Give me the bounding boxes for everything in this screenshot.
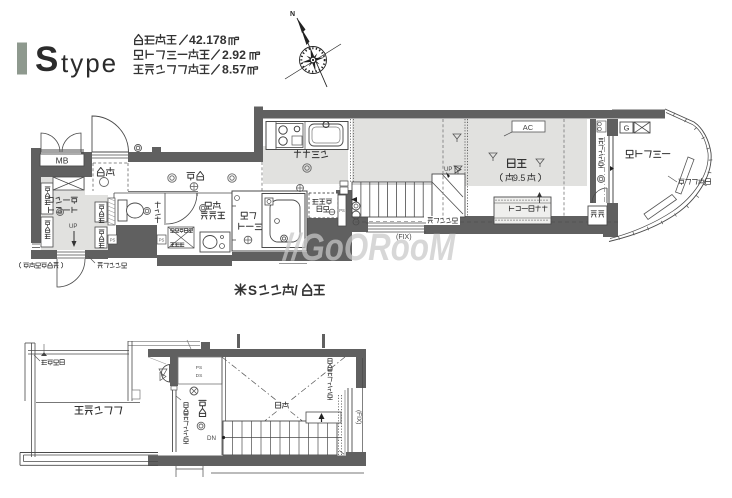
svg-text:UP: UP xyxy=(69,224,77,230)
svg-text:MB: MB xyxy=(56,156,69,166)
svg-text:N: N xyxy=(290,11,295,18)
svg-text:type: type xyxy=(61,48,118,78)
svg-text:(FIX): (FIX) xyxy=(355,410,362,424)
svg-text:UP: UP xyxy=(444,167,452,173)
svg-text:2.92: 2.92 xyxy=(222,48,246,62)
svg-text:/: / xyxy=(294,283,298,298)
svg-text:PS: PS xyxy=(110,238,116,243)
svg-text:PS: PS xyxy=(339,208,345,213)
svg-text:8.57: 8.57 xyxy=(222,63,246,77)
svg-text:AC: AC xyxy=(523,123,534,132)
svg-text:PS: PS xyxy=(196,365,202,371)
svg-text:PS: PS xyxy=(159,238,165,243)
svg-text:42.178: 42.178 xyxy=(189,33,227,47)
svg-text:9.5: 9.5 xyxy=(513,173,525,183)
svg-text:DS: DS xyxy=(196,373,203,379)
svg-text:G: G xyxy=(624,124,630,133)
svg-text:S: S xyxy=(248,283,257,298)
svg-text://GoORooM: //GoORooM xyxy=(281,227,456,269)
svg-text:DN: DN xyxy=(207,435,216,442)
svg-text:S: S xyxy=(35,40,58,79)
